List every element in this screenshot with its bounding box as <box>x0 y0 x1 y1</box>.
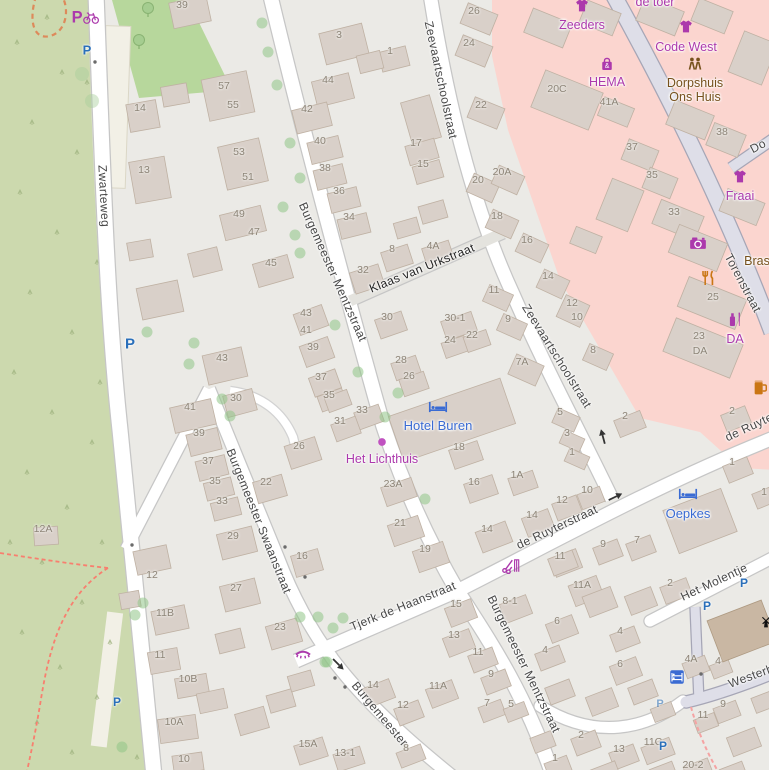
oneway-arrow <box>598 428 608 444</box>
map-canvas <box>0 0 769 770</box>
map[interactable]: ZwartewegBurgemeester MentzstraatZeevaar… <box>0 0 769 770</box>
